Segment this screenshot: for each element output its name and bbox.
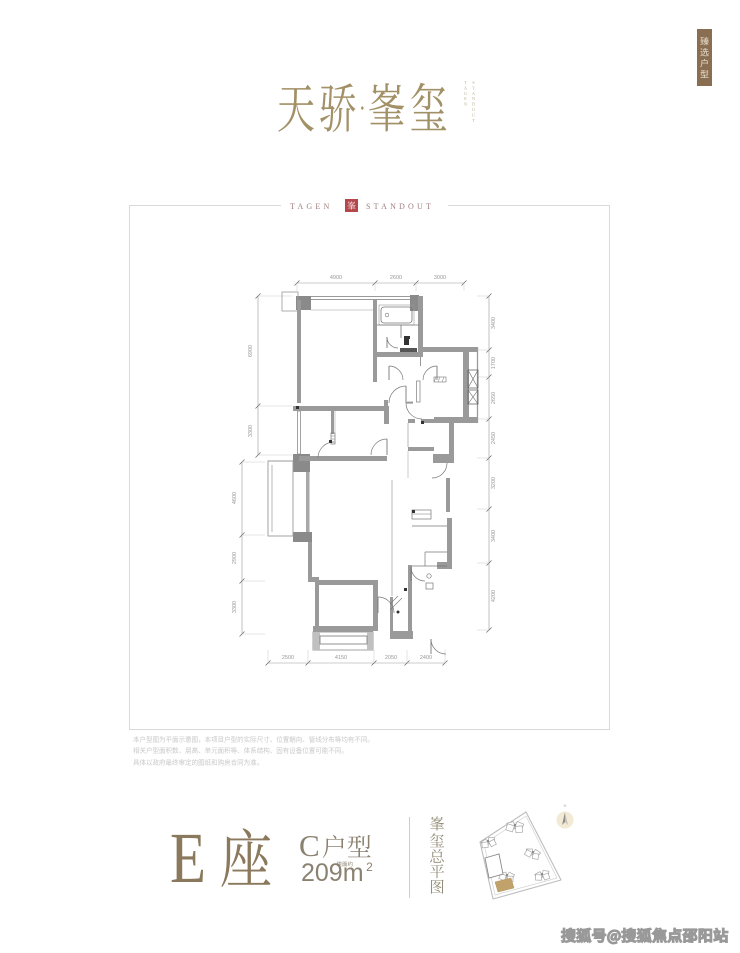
svg-text:2500: 2500	[282, 655, 294, 661]
svg-text:4900: 4900	[330, 275, 342, 281]
svg-text:2650: 2650	[491, 392, 497, 404]
svg-text:2400: 2400	[420, 655, 432, 661]
svg-text:N: N	[564, 803, 567, 808]
svg-text:3300: 3300	[232, 601, 238, 613]
svg-text:3300: 3300	[248, 425, 254, 437]
svg-text:3400: 3400	[491, 317, 497, 329]
svg-text:2050: 2050	[385, 655, 397, 661]
svg-text:2600: 2600	[390, 275, 402, 281]
svg-text:3200: 3200	[491, 477, 497, 489]
svg-text:3000: 3000	[434, 275, 446, 281]
svg-text:4600: 4600	[232, 492, 238, 504]
svg-text:2450: 2450	[491, 432, 497, 444]
svg-text:4200: 4200	[491, 590, 497, 602]
svg-text:3400: 3400	[491, 530, 497, 542]
svg-text:6900: 6900	[248, 345, 254, 357]
svg-text:4150: 4150	[335, 655, 347, 661]
svg-text:1700: 1700	[491, 357, 497, 369]
svg-text:2900: 2900	[232, 552, 238, 564]
